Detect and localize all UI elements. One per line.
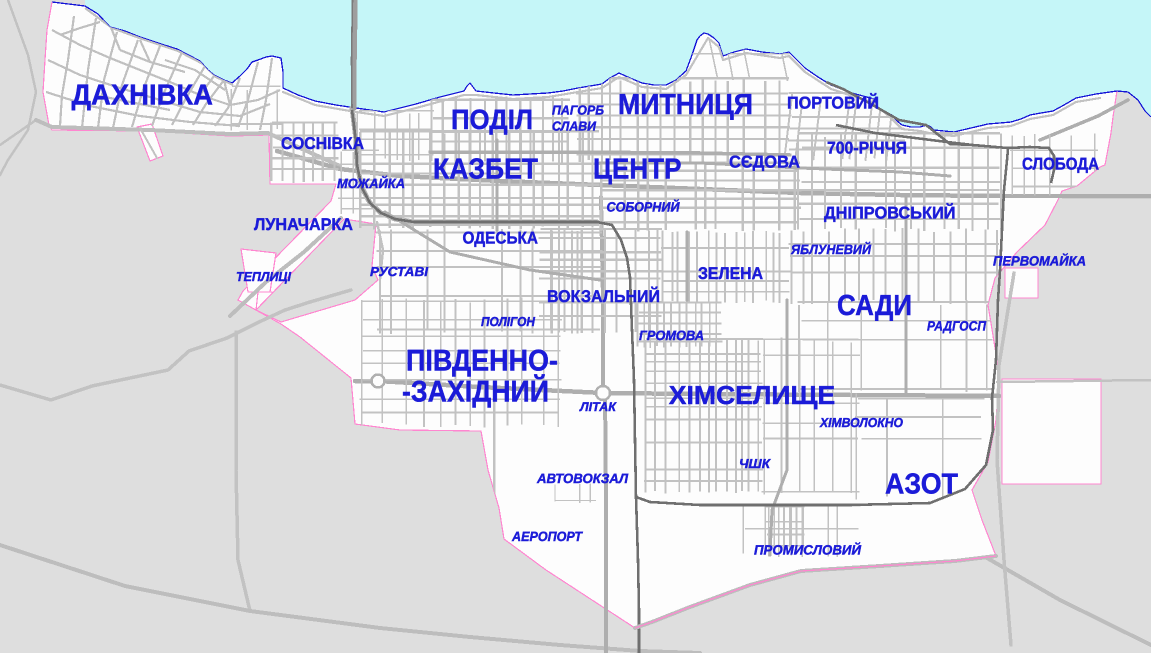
svg-text:ЦЕНТР: ЦЕНТР xyxy=(593,154,682,186)
svg-text:ТЕПЛИЦІ: ТЕПЛИЦІ xyxy=(236,269,291,284)
svg-text:КАЗБЕТ: КАЗБЕТ xyxy=(433,154,538,186)
svg-text:-ЗАХІДНИЙ: -ЗАХІДНИЙ xyxy=(402,374,549,409)
svg-text:МИТНИЦЯ: МИТНИЦЯ xyxy=(618,89,753,121)
svg-text:ПРОМИСЛОВИЙ: ПРОМИСЛОВИЙ xyxy=(754,542,861,558)
svg-text:СЛОБОДА: СЛОБОДА xyxy=(1022,155,1099,174)
svg-text:САДИ: САДИ xyxy=(837,290,912,322)
svg-text:ПІВДЕННО-: ПІВДЕННО- xyxy=(406,345,558,378)
svg-text:АЗОТ: АЗОТ xyxy=(885,469,958,501)
svg-text:ПЕРВОМАЙКА: ПЕРВОМАЙКА xyxy=(993,253,1086,269)
svg-text:700-РІЧЧЯ: 700-РІЧЧЯ xyxy=(827,139,907,158)
svg-text:ЧШК: ЧШК xyxy=(739,456,771,471)
svg-text:ДАХНІВКА: ДАХНІВКА xyxy=(72,80,214,112)
svg-text:ХІМВОЛОКНО: ХІМВОЛОКНО xyxy=(819,415,903,430)
svg-text:СОСНІВКА: СОСНІВКА xyxy=(281,134,364,153)
svg-text:ЗЕЛЕНА: ЗЕЛЕНА xyxy=(698,264,763,283)
svg-text:ОДЕСЬКА: ОДЕСЬКА xyxy=(463,229,539,248)
svg-text:ПОДІЛ: ПОДІЛ xyxy=(451,104,533,135)
svg-text:СОБОРНИЙ: СОБОРНИЙ xyxy=(607,199,680,215)
svg-text:АЕРОПОРТ: АЕРОПОРТ xyxy=(511,529,584,544)
svg-text:ХІМСЕЛИЩЕ: ХІМСЕЛИЩЕ xyxy=(669,380,835,410)
svg-text:ВОКЗАЛЬНИЙ: ВОКЗАЛЬНИЙ xyxy=(547,286,660,306)
svg-text:МОЖАЙКА: МОЖАЙКА xyxy=(337,175,405,191)
svg-text:ГРОМОВА: ГРОМОВА xyxy=(639,328,704,343)
svg-text:ПОРТОВИЙ: ПОРТОВИЙ xyxy=(787,93,879,113)
svg-text:РАДГОСП: РАДГОСП xyxy=(927,319,986,334)
svg-text:ДНІПРОВСЬКИЙ: ДНІПРОВСЬКИЙ xyxy=(824,203,956,223)
svg-text:ЛІТАК: ЛІТАК xyxy=(579,400,617,414)
svg-text:РУСТАВІ: РУСТАВІ xyxy=(370,264,428,279)
svg-text:СЄДОВА: СЄДОВА xyxy=(729,153,800,172)
svg-text:СЛАВИ: СЛАВИ xyxy=(552,119,597,134)
svg-text:АВТОВОКЗАЛ: АВТОВОКЗАЛ xyxy=(536,471,629,486)
svg-text:ПОЛІГОН: ПОЛІГОН xyxy=(481,314,536,329)
svg-text:ПАГОРБ: ПАГОРБ xyxy=(552,103,604,118)
svg-text:ЯБЛУНЕВИЙ: ЯБЛУНЕВИЙ xyxy=(790,241,871,257)
svg-text:ЛУНАЧАРКА: ЛУНАЧАРКА xyxy=(254,215,353,234)
